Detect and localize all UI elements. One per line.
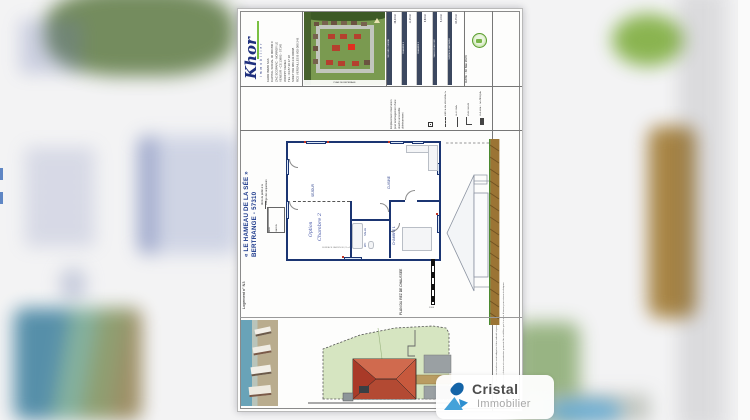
aerial-siteplan-image: PLAN DE REPERAGE [304,12,385,85]
legend-label: COFFRET TECHNIQUE [480,91,483,116]
door-arc [289,201,298,210]
elevation-body [474,193,488,277]
unit-label: Logement n° N3 [242,267,247,309]
bg-edge-mark-1 [0,168,3,180]
door-arc [405,190,415,200]
aerial-road-loop [316,25,374,73]
table-header-label: SURFACE HABITABLE [449,38,452,60]
aerial-house [314,22,319,26]
table-value-cell: 38,20 m² [392,12,403,85]
handwritten-option: Option [309,207,314,237]
driveway-upper [424,355,451,373]
cloture-symbol [457,117,458,127]
aerial-north-arrow-icon [374,18,380,23]
aerial-house [351,21,357,25]
watermark-sub: Immobilier [477,398,531,410]
project-title-block: « LE HAMEAU DE LA SÉE » BERTRANGE - 5731… [243,145,259,257]
aerial-house-red [354,34,361,39]
bg-blob-text-smudge-2 [25,150,95,248]
cristal-logo-icon [443,381,471,413]
room-label-sejour: SEJOUR [312,171,316,197]
bg-blob-blue-band [138,136,238,254]
wc-fixture [368,241,374,249]
door-arc [289,159,298,168]
aerial-house [313,59,318,64]
aerial-caption: PLAN DE REPERAGE [333,82,355,84]
bg-right-edge [738,0,750,420]
render-photo [241,320,278,406]
table-value: 5,10 m² [441,14,444,22]
note-line: ultérieurement [402,93,406,129]
aerial-house-red [326,60,333,65]
room-label-wc: WC [364,239,367,247]
red-tick [304,141,306,143]
rge-logo-inner [476,39,482,44]
legend-item: PORTILLON [464,91,475,129]
photo-house [252,344,271,355]
bg-blob-text-smudge-1 [20,22,82,74]
bed [402,227,432,251]
interior-wall [417,200,441,202]
aerial-house [361,22,367,26]
company-line: RCS VERSAILLES B 802 080 243 [295,14,299,82]
table-value: 64,45 m² [456,14,459,23]
screenshot-canvas: Khor i m m o b i l i e r KHOR IMMO SAS C… [0,0,750,420]
surface-table: SEJOUR / CUISINE 38,20 m² CHAMBRE 1 11,3… [387,12,463,85]
watermark-card: Cristal Immobilier [436,375,554,419]
aerial-house-red [352,61,359,66]
table-value-cell: 5,10 m² [437,12,448,85]
note-abris-jardin: Abris de jardin à la charge des acquéreu… [261,149,269,205]
limite-propriete-symbol [445,117,446,127]
legend: LIMITE DE PROPRIETE CLOTURE PORTILLON CO… [441,91,487,129]
legend-label: CLOTURE [456,91,459,116]
douche-symbol-icon [428,122,433,127]
cartouche-divider-1 [240,86,522,87]
bathtub [352,223,363,249]
aerial-trees-top [304,12,385,21]
building-door [359,386,369,393]
room-label-chambre1: CHAMBRE 1 [393,217,397,245]
room-label-cuisine: CUISINE [388,165,392,189]
table-header-label: SEJOUR / CUISINE [388,39,391,58]
elevation-drawing [444,137,502,327]
legend-label: PORTILLON [468,91,471,116]
douche-symbol-dot [430,124,432,126]
red-tick [388,141,390,143]
door-arc [380,203,389,212]
project-title: « LE HAMEAU DE LA SÉE » [243,145,251,257]
rge-logo-icon [472,33,487,48]
annotation-leader-line [265,201,266,209]
scale-bar [431,259,435,305]
table-header-label: CHAMBRE 1 [403,42,406,54]
red-tick [436,213,438,215]
window [412,141,424,144]
aerial-house [313,34,318,39]
note-douche: Emplacement réservation pour aménagement… [390,93,406,129]
cartouche-divider-2 [240,130,522,131]
floor-plan: SEJOUR CUISINE CHAMBRE 1 SALLE WC Option… [286,141,441,261]
elevation-dormer [474,175,487,184]
bg-edge-mark-2 [0,192,3,204]
document-page: Khor i m m o b i l i e r KHOR IMMO SAS C… [237,8,523,412]
table-value: 11,35 m² [410,14,413,23]
aerial-house-red [338,61,345,66]
aerial-house-red [328,34,335,39]
photo-house [250,365,271,377]
lower-divider [240,317,522,318]
portillon-symbol [466,117,472,125]
interior-wall [350,219,391,221]
cristal-logo-drop [449,380,466,398]
grass-line [489,139,490,325]
aerial-house [364,60,370,65]
garden-shed [343,393,353,401]
jardin-label-2: JARDIN [276,208,284,232]
table-value: 38,20 m² [395,14,398,23]
aerial-house [322,21,328,25]
interior-wall [389,200,405,202]
khor-logo-sub: i m m o b i l i e r [260,17,264,77]
jardin-label-1: ABRI [268,208,276,232]
bg-blob-green-oval [612,14,684,66]
aerial-house-highlight [348,44,355,50]
red-tick [342,256,344,258]
legend-item: COFFRET TECHNIQUE [476,91,487,129]
elevation-roof [447,175,474,291]
coffret-technique-symbol [480,118,484,125]
window [390,141,404,144]
jardin-box: ABRI JARDIN [267,207,285,233]
project-city: BERTRANGE - 57310 [251,145,259,257]
bg-blob-blue-bottom [548,400,622,420]
window [437,215,440,233]
room-label-salle: SALLE [364,223,367,236]
cartouche-vdiv-1 [302,11,303,86]
company-info: KHOR IMMO SAS CAPITAL SOCIAL 40 000 800 … [266,14,300,82]
table-header-label: SALLE D'EAU / WC [434,39,437,57]
aerial-trees-left [304,12,311,85]
table-value-cell: 11,35 m² [407,12,418,85]
legend-label: LIMITE DE PROPRIETE [445,91,448,116]
aerial-house-red [340,34,347,39]
aerial-house [313,46,318,51]
photo-house [254,326,271,336]
kitchen-counter [428,145,438,171]
aerial-house [331,21,337,25]
plan-label: PLAN DU REZ DE CHAUSSEE [400,261,404,315]
aerial-house [341,21,347,25]
photo-house [249,385,272,397]
bg-streaks-right [682,0,724,420]
aerial-caption-bar: PLAN DE REPERAGE [304,80,385,85]
dimension-note: SURFACE JARDIN 80,21 m² [322,247,350,249]
red-tick [327,141,329,143]
bg-blob-small-smudge [60,268,86,302]
table-header-label: CHAMBRE 2 [418,42,421,54]
bg-blob-photo-left [14,308,142,420]
window [306,141,326,144]
window [344,257,362,260]
table-value-cell: 64,45 m² [452,12,463,85]
legend-item: LIMITE DE PROPRIETE [441,91,451,129]
aerial-house-red [332,45,340,51]
handwritten-chambre2: Chambre 2 [317,205,323,241]
scale-text: 1/100 [429,307,434,309]
date-label: DATE : 30 Mai 2023 [465,15,469,83]
disclaimer-text-2: Les implantations des équipements, clois… [503,17,506,409]
note-line: charge des acquéreurs [265,149,269,205]
watermark-brand: Cristal [472,381,518,397]
table-value: 9,80 m² [425,14,428,22]
table-value-cell: 9,80 m² [422,12,433,85]
dashed-partition [293,201,350,202]
legend-item: CLOTURE [453,91,462,129]
